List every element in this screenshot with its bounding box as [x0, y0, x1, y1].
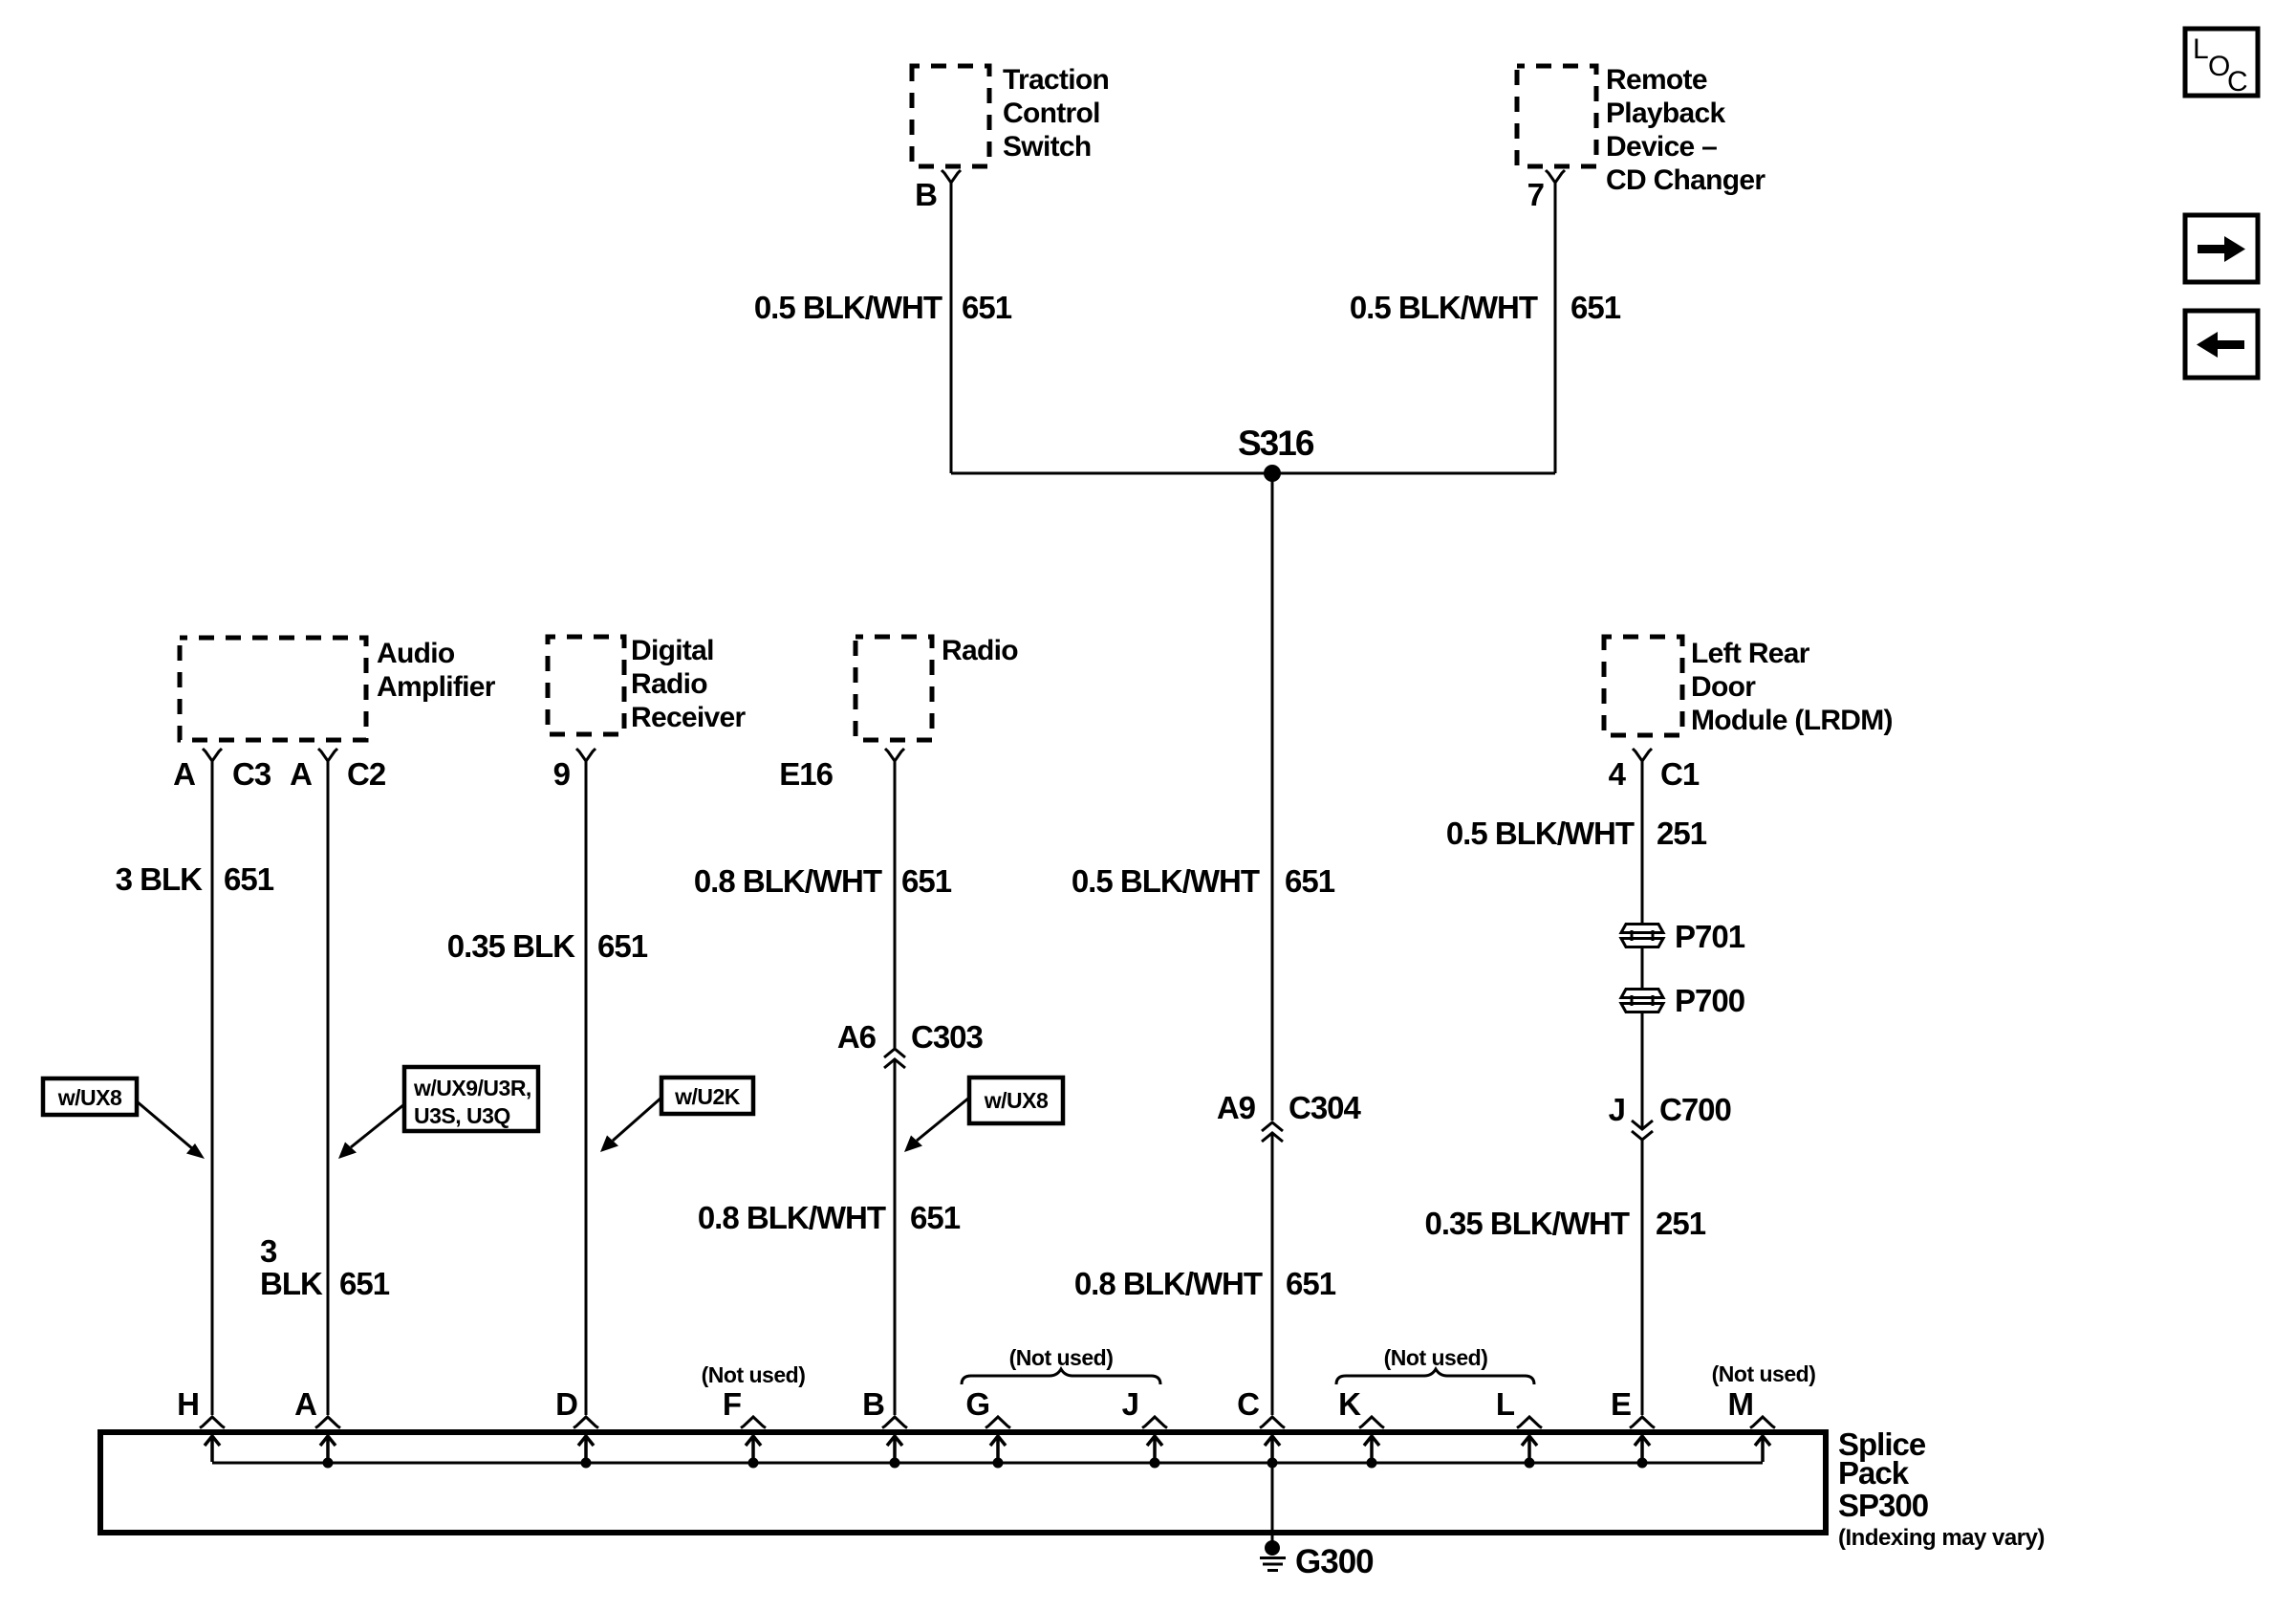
svg-text:251: 251	[1657, 816, 1707, 851]
svg-text:C304: C304	[1289, 1090, 1362, 1125]
svg-text:P701: P701	[1675, 919, 1745, 954]
svg-text:0.35 BLK/WHT: 0.35 BLK/WHT	[1424, 1206, 1629, 1241]
svg-text:G: G	[965, 1386, 989, 1422]
svg-text:S316: S316	[1238, 424, 1314, 463]
svg-text:SP300: SP300	[1838, 1488, 1928, 1523]
svg-text:Receiver: Receiver	[631, 702, 747, 733]
svg-text:(Indexing may vary): (Indexing may vary)	[1838, 1525, 2045, 1551]
svg-text:K: K	[1338, 1386, 1361, 1422]
svg-text:Playback: Playback	[1606, 98, 1726, 129]
svg-text:H: H	[177, 1386, 199, 1422]
svg-text:651: 651	[1570, 290, 1621, 325]
svg-text:Radio: Radio	[631, 668, 707, 700]
svg-text:Pack: Pack	[1838, 1455, 1910, 1491]
svg-text:A: A	[294, 1386, 316, 1422]
svg-text:Door: Door	[1691, 671, 1756, 703]
svg-text:E: E	[1611, 1386, 1631, 1422]
svg-text:9: 9	[553, 756, 571, 792]
svg-text:U3S, U3Q: U3S, U3Q	[414, 1103, 510, 1128]
svg-text:BLK: BLK	[260, 1266, 323, 1301]
svg-text:J: J	[1609, 1092, 1625, 1127]
svg-text:Amplifier: Amplifier	[377, 671, 496, 703]
svg-text:F: F	[723, 1386, 741, 1422]
svg-text:C3: C3	[232, 756, 271, 792]
svg-text:251: 251	[1656, 1206, 1706, 1241]
svg-text:w/UX8: w/UX8	[57, 1085, 122, 1110]
svg-text:C700: C700	[1659, 1092, 1731, 1127]
svg-text:Radio: Radio	[942, 635, 1018, 666]
svg-text:0.8 BLK/WHT: 0.8 BLK/WHT	[698, 1200, 886, 1235]
svg-text:C: C	[2227, 66, 2248, 98]
svg-text:651: 651	[901, 863, 952, 899]
svg-text:w/UX8: w/UX8	[984, 1088, 1049, 1113]
svg-text:A6: A6	[837, 1019, 877, 1055]
svg-text:Traction: Traction	[1003, 64, 1109, 96]
svg-text:3 BLK: 3 BLK	[116, 861, 204, 897]
svg-text:A: A	[290, 756, 312, 792]
svg-text:E16: E16	[779, 756, 833, 792]
svg-text:Digital: Digital	[631, 635, 714, 666]
svg-text:0.8 BLK/WHT: 0.8 BLK/WHT	[1074, 1266, 1263, 1301]
svg-text:L: L	[1496, 1386, 1515, 1422]
svg-text:0.35 BLK: 0.35 BLK	[447, 928, 575, 964]
svg-text:3: 3	[260, 1233, 277, 1269]
svg-text:0.5 BLK/WHT: 0.5 BLK/WHT	[1072, 863, 1260, 899]
svg-text:w/UX9/U3R,: w/UX9/U3R,	[413, 1076, 531, 1100]
svg-text:(Not used): (Not used)	[702, 1362, 806, 1387]
svg-text:0.5 BLK/WHT: 0.5 BLK/WHT	[1446, 816, 1635, 851]
svg-text:651: 651	[962, 290, 1012, 325]
svg-text:651: 651	[224, 861, 274, 897]
svg-text:C: C	[1237, 1386, 1259, 1422]
svg-text:651: 651	[910, 1200, 961, 1235]
svg-text:J: J	[1122, 1386, 1138, 1422]
svg-text:Audio: Audio	[377, 638, 455, 669]
svg-text:D: D	[555, 1386, 577, 1422]
svg-text:Remote: Remote	[1606, 64, 1707, 96]
svg-text:651: 651	[597, 928, 648, 964]
svg-text:651: 651	[1286, 1266, 1336, 1301]
svg-text:Device –: Device –	[1606, 131, 1717, 163]
svg-text:A: A	[173, 756, 195, 792]
svg-text:G300: G300	[1295, 1543, 1374, 1580]
svg-text:Control: Control	[1003, 98, 1100, 129]
svg-text:B: B	[915, 177, 937, 212]
svg-text:0.8 BLK/WHT: 0.8 BLK/WHT	[694, 863, 882, 899]
svg-text:C2: C2	[347, 756, 386, 792]
svg-text:M: M	[1728, 1386, 1754, 1422]
svg-text:Switch: Switch	[1003, 131, 1091, 163]
svg-text:4: 4	[1609, 756, 1627, 792]
svg-text:7: 7	[1527, 177, 1544, 212]
svg-text:P700: P700	[1675, 983, 1744, 1018]
svg-text:651: 651	[1285, 863, 1335, 899]
svg-text:0.5 BLK/WHT: 0.5 BLK/WHT	[1350, 290, 1538, 325]
svg-text:651: 651	[339, 1266, 390, 1301]
svg-text:C303: C303	[911, 1019, 984, 1055]
svg-text:Module (LRDM): Module (LRDM)	[1691, 705, 1893, 736]
svg-text:Left Rear: Left Rear	[1691, 638, 1810, 669]
svg-text:B: B	[862, 1386, 884, 1422]
svg-text:A9: A9	[1217, 1090, 1256, 1125]
svg-text:CD Changer: CD Changer	[1606, 164, 1765, 196]
svg-text:L: L	[2193, 33, 2209, 65]
svg-text:(Not used): (Not used)	[1712, 1361, 1816, 1386]
svg-text:C1: C1	[1660, 756, 1700, 792]
svg-text:w/U2K: w/U2K	[674, 1084, 741, 1109]
svg-text:0.5 BLK/WHT: 0.5 BLK/WHT	[754, 290, 942, 325]
